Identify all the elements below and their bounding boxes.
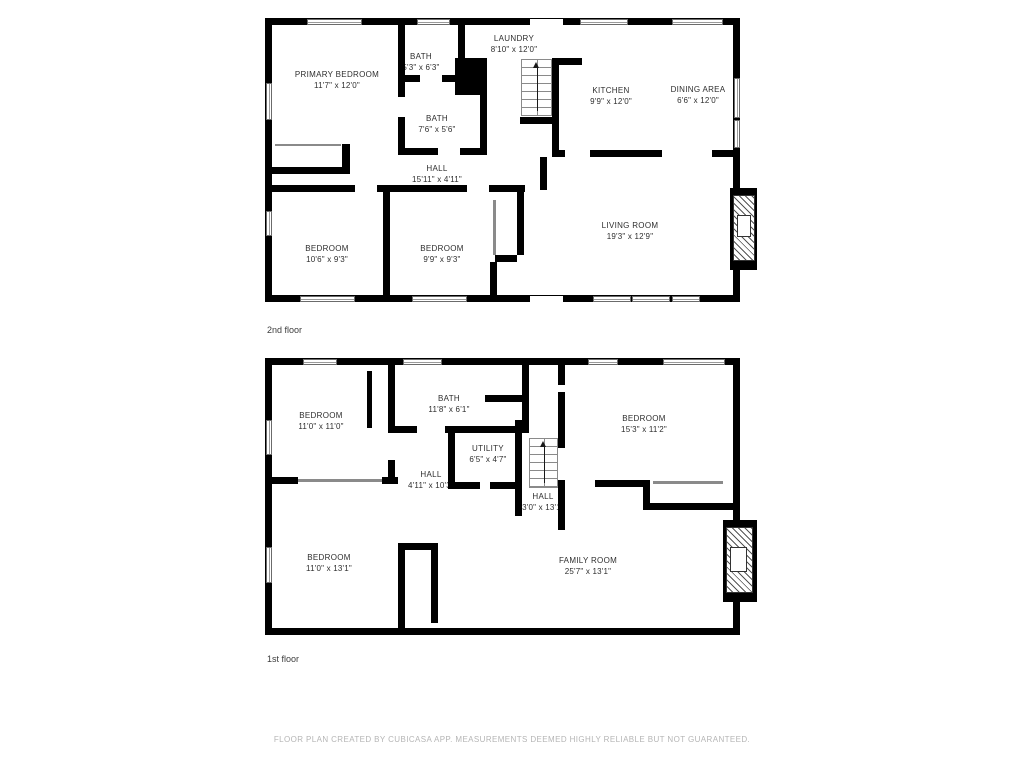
wall-segment [558,392,565,448]
window [672,19,723,25]
room-bath-large: BATH7'6" x 5'6" [418,113,455,135]
staircase-2nd [521,59,552,116]
window [632,296,670,302]
wall-segment [398,75,420,82]
fireplace-firebox [737,215,751,237]
chimney-block [455,58,487,95]
room-living-room: LIVING ROOM19'3" x 12'9" [602,220,659,242]
room-bath-1st: BATH11'8" x 6'1" [428,393,469,415]
wall-segment [398,148,438,155]
wall-segment [558,480,565,530]
wall-segment [398,25,405,97]
wall-segment [515,420,522,516]
wall-segment [522,365,529,433]
room-laundry: LAUNDRY8'10" x 12'0" [491,33,537,55]
wall-segment [431,550,438,623]
room-family-room: FAMILY ROOM25'7" x 13'1" [559,555,617,577]
wall-segment [595,480,650,487]
wall-segment [272,477,298,484]
wall-segment [398,550,405,632]
room-bedroom-left: BEDROOM10'6" x 9'3" [305,243,348,265]
window [672,296,700,302]
wall-segment [552,58,559,157]
door-opening [530,296,563,302]
room-primary-bedroom: PRIMARY BEDROOM11'7" x 12'0" [295,69,379,91]
wall-segment [520,117,553,124]
wall-segment [377,185,467,192]
wall-segment [398,117,405,148]
wall-segment [517,192,524,255]
stairs-up-arrow [544,446,545,483]
staircase-1st [529,438,558,488]
room-bath-small: BATH5'3" x 6'3" [402,51,439,73]
closet-wall [367,371,372,428]
wall-segment [383,185,390,295]
room-utility: UTILITY6'5" x 4'7" [469,443,506,465]
wall-segment [590,150,662,157]
stairs-up-arrow-head [540,441,546,447]
outer-wall [265,18,272,302]
wall-segment [489,185,525,192]
stairs-up-arrow-head [533,62,539,68]
floor-plan-1st: BEDROOM11'0" x 11'0" BATH11'8" x 6'1" BE… [265,358,740,635]
room-bedroom-topleft: BEDROOM11'0" x 11'0" [298,410,343,432]
wall-segment [442,75,455,82]
door-opening [530,19,563,25]
wall-segment [382,477,398,484]
window [580,19,628,25]
wall-segment [490,482,515,489]
wall-segment [495,255,517,262]
window [734,78,740,118]
wall-segment [448,433,455,489]
window [663,359,725,365]
wall-segment [272,185,355,192]
window [266,547,272,583]
interior-window-line [653,481,723,484]
wall-segment [460,148,487,155]
window [266,211,272,236]
floor-label-1st: 1st floor [267,654,299,664]
window [300,296,355,302]
window [412,296,467,302]
window [588,359,618,365]
window [266,420,272,455]
room-kitchen: KITCHEN9'9" x 12'0" [590,85,632,107]
wall-segment [552,150,565,157]
door-line [298,479,382,482]
window [303,359,337,365]
wall-segment [398,543,438,550]
wall-segment [448,482,480,489]
wall-segment [458,25,465,58]
closet-line [275,144,341,146]
window [266,83,272,120]
wall-segment [712,150,733,157]
room-hall-2nd: HALL15'11" x 4'11" [412,163,462,185]
outer-wall [265,628,740,635]
fireplace-firebox [730,547,747,572]
window [734,120,740,148]
room-bedroom-topright: BEDROOM15'3" x 11'2" [621,413,667,435]
stairs-up-arrow [537,67,538,111]
room-bedroom-bottomleft: BEDROOM11'0" x 13'1" [306,552,352,574]
wall-segment [643,487,650,503]
window [593,296,631,302]
room-bedroom-mid: BEDROOM9'9" x 9'3" [420,243,463,265]
floor-plan-2nd: PRIMARY BEDROOM11'7" x 12'0" BATH5'3" x … [265,18,740,302]
wall-segment [485,395,522,402]
wall-segment [445,426,523,433]
floor-label-2nd: 2nd floor [267,325,302,335]
disclaimer-text: FLOOR PLAN CREATED BY CUBICASA APP. MEAS… [0,735,1024,744]
wall-segment [388,426,417,433]
window [417,19,450,25]
wall-segment [480,95,487,148]
wall-segment [558,365,565,385]
wall-segment [643,503,733,510]
floor-plan-page: PRIMARY BEDROOM11'7" x 12'0" BATH5'3" x … [0,0,1024,768]
wall-segment [490,262,497,295]
wall-segment [558,58,582,65]
outer-wall [265,358,272,635]
wall-segment [540,157,547,190]
wall-segment [388,365,395,428]
window [307,19,362,25]
room-dining-area: DINING AREA6'6" x 12'0" [671,84,726,106]
window [403,359,442,365]
closet-door-line [493,200,496,255]
wall-segment [265,167,350,174]
